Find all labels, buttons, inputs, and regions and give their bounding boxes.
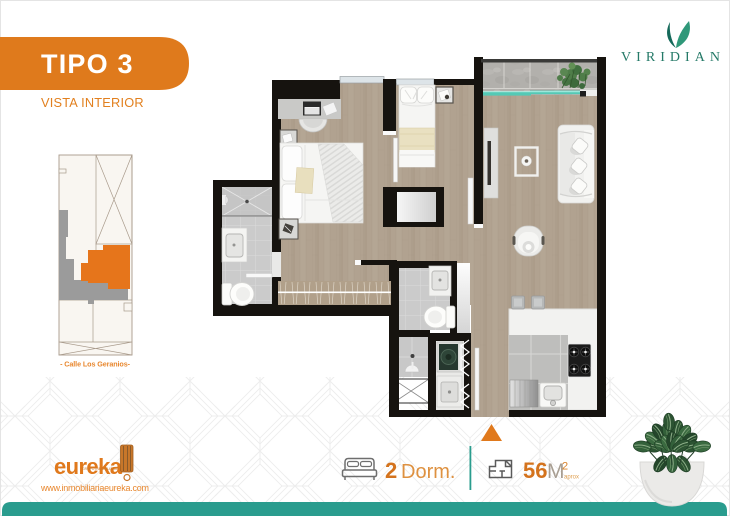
svg-text:www.inmobiliariaeureka.com: www.inmobiliariaeureka.com bbox=[40, 483, 149, 493]
svg-text:TIPO 3: TIPO 3 bbox=[41, 49, 134, 79]
svg-text:2: 2 bbox=[562, 461, 568, 473]
svg-text:aprox: aprox bbox=[564, 475, 579, 481]
svg-text:2: 2 bbox=[385, 458, 397, 483]
svg-text:56: 56 bbox=[523, 458, 547, 483]
svg-text:- Calle Los Geranios-: - Calle Los Geranios- bbox=[60, 360, 130, 369]
svg-text:VISTA INTERIOR: VISTA INTERIOR bbox=[41, 95, 144, 110]
svg-text:Dorm.: Dorm. bbox=[401, 461, 455, 483]
svg-text:GRUPO INMOBILIARIO: GRUPO INMOBILIARIO bbox=[82, 467, 119, 471]
svg-text:VIRIDIAN: VIRIDIAN bbox=[621, 50, 723, 65]
